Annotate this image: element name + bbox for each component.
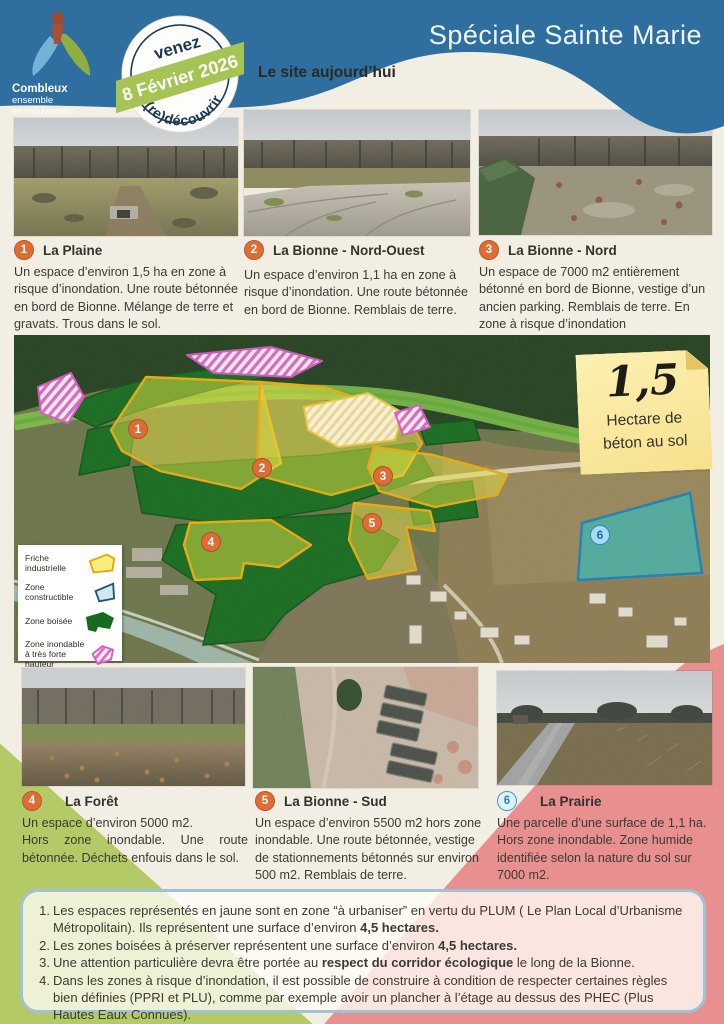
legend-yellow-zone-icon [88, 552, 116, 575]
site-description: Un espace d’environ 1,1 ha en zone à ris… [244, 267, 476, 319]
footnote-2: 2. Les zones boisées à préserver représe… [33, 937, 689, 954]
site-description: Un espace d’environ 5500 m2 hors zone in… [255, 815, 483, 885]
footnote-text: Dans les zones à risque d’inondation, il… [53, 972, 689, 1024]
footnote-number: 1. [33, 902, 53, 937]
footnote-number: 3. [33, 954, 53, 971]
site-number-badge: 2 [244, 240, 264, 260]
site-description: Un espace de 7000 m2 entièrement bétonné… [479, 264, 715, 334]
caption-la-bionne-sud: 5 La Bionne - Sud Un espace d’environ 55… [255, 791, 483, 885]
footnotes-box: 1. Les espaces représentés en jaune sont… [20, 889, 706, 1013]
site-title: La Bionne - Nord-Ouest [273, 243, 425, 258]
site-number-badge: 6 [497, 791, 517, 811]
sticky-note: 1,5 Hectare de béton au sol [575, 349, 712, 475]
sticky-note-value: 1,5 [576, 357, 710, 405]
caption-la-bionne-nord-ouest: 2 La Bionne - Nord-Ouest Un espace d’env… [244, 240, 476, 319]
site-number-badge: 1 [14, 240, 34, 260]
site-title: La Prairie [540, 794, 602, 809]
site-number-badge: 4 [22, 791, 42, 811]
footnote-3: 3. Une attention particulière devra être… [33, 954, 689, 971]
legend-green-zone-icon [84, 610, 116, 634]
legend-item-boisee: Zone boisée [25, 610, 116, 634]
legend-item-constructible: Zone constructible [25, 581, 116, 604]
legend-label: Zone constructible [25, 583, 90, 603]
newsletter-page: Spéciale Sainte Marie Le site aujourd’hu… [0, 0, 724, 1024]
site-title: La Bionne - Sud [284, 794, 387, 809]
logo-line3: en mouvement [12, 107, 122, 118]
legend-label: Friche industrielle [25, 554, 88, 574]
sticky-note-line2: béton au sol [579, 428, 712, 457]
footnote-text: Les zones boisées à préserver représente… [53, 937, 689, 954]
marker-number: 2 [259, 461, 266, 475]
map-marker-5: 5 [362, 513, 382, 533]
map-marker-4: 4 [201, 532, 221, 552]
footnote-text: Les espaces représentés en jaune sont en… [53, 902, 689, 937]
site-number-badge: 5 [255, 791, 275, 811]
marker-number: 1 [135, 422, 142, 436]
marker-number: 4 [208, 535, 215, 549]
legend-item-friche: Friche industrielle [25, 552, 116, 575]
caption-la-plaine: 1 La Plaine Un espace d’environ 1,5 ha e… [14, 240, 244, 334]
marker-number: 6 [597, 528, 604, 542]
footnote-1: 1. Les espaces représentés en jaune sont… [33, 902, 689, 937]
aerial-map: 1 2 3 4 5 6 Friche industrielle Zone con… [14, 335, 710, 663]
legend-item-inondable: Zone inondable à très forte hauteur [25, 640, 116, 670]
logo-text: Combleux ensemble en mouvement [12, 83, 122, 118]
site-title: La Plaine [43, 243, 102, 258]
map-marker-6: 6 [590, 525, 610, 545]
page-title: Spéciale Sainte Marie [429, 20, 702, 51]
legend-label: Zone inondable à très forte hauteur [25, 640, 89, 670]
photo-la-foret [22, 668, 245, 786]
site-description: Un espace d’environ 1,5 ha en zone à ris… [14, 264, 244, 334]
map-marker-1: 1 [128, 419, 148, 439]
site-title: La Forêt [65, 794, 118, 809]
footnote-number: 4. [33, 972, 53, 1024]
footnote-text: Une attention particulière devra être po… [53, 954, 689, 971]
site-description: Une parcelle d’une surface de 1,1 ha. Ho… [497, 815, 713, 885]
photo-la-prairie [497, 671, 712, 785]
map-marker-2: 2 [252, 458, 272, 478]
photo-la-bionne-sud [253, 667, 478, 788]
legend-label: Zone boisée [25, 617, 72, 627]
legend-pink-zone-icon [89, 643, 116, 667]
caption-la-foret: 4 La Forêt Un espace d’environ 5000 m2. … [22, 791, 248, 867]
footnote-4: 4. Dans les zones à risque d’inondation,… [33, 972, 689, 1024]
caption-la-prairie: 6 La Prairie Une parcelle d’une surface … [497, 791, 713, 885]
event-stamp: venez (re)découvrir 8 Février 2026 [116, 8, 244, 147]
site-title: La Bionne - Nord [508, 243, 617, 258]
site-number-badge: 3 [479, 240, 499, 260]
marker-number: 5 [369, 516, 376, 530]
section-title: Le site aujourd’hui [258, 64, 396, 82]
caption-la-bionne-nord: 3 La Bionne - Nord Un espace de 7000 m2 … [479, 240, 715, 334]
sticky-note-text: Hectare de béton au sol [578, 405, 712, 457]
logo: Combleux ensemble en mouvement [12, 10, 122, 118]
logo-figure-icon [12, 10, 108, 76]
footnote-number: 2. [33, 937, 53, 954]
map-legend: Friche industrielle Zone constructible Z… [18, 545, 122, 661]
site-description: Un espace d’environ 5000 m2. Hors zone i… [22, 815, 248, 867]
map-marker-3: 3 [373, 466, 393, 486]
marker-number: 3 [380, 469, 387, 483]
legend-blue-zone-icon [90, 581, 116, 604]
